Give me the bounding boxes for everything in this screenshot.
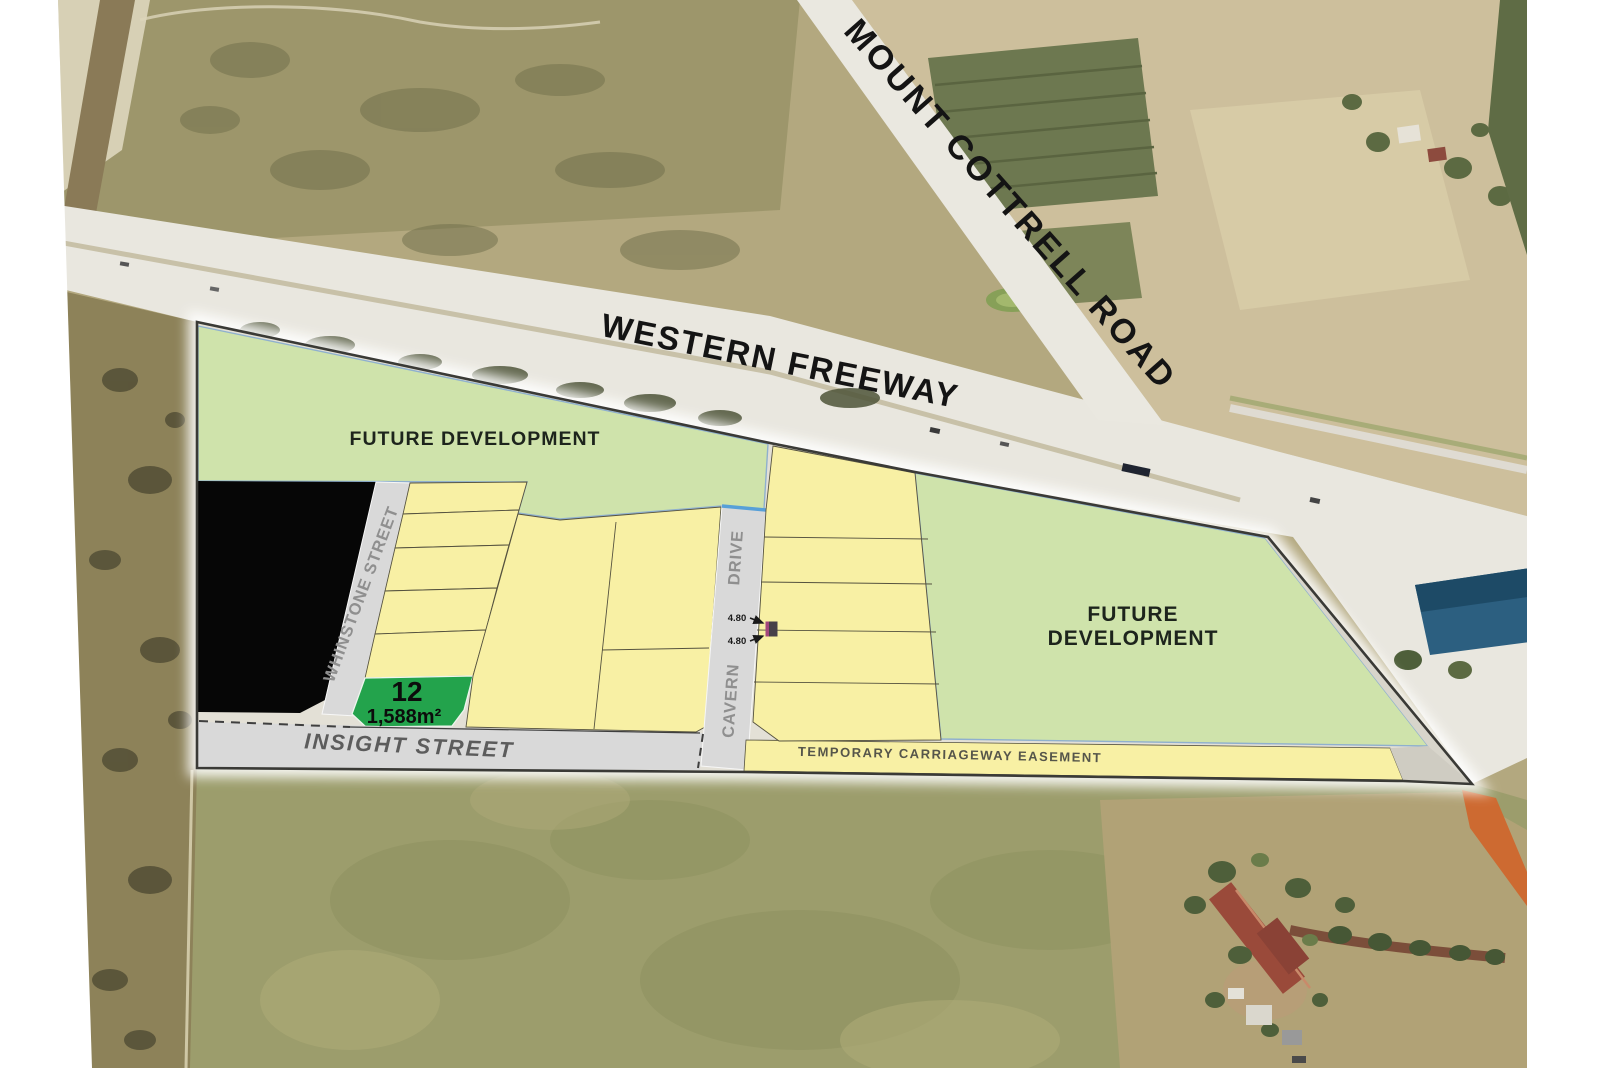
aerial-map: 4.80 4.80 12 1,588m² FUTURE DEVELOPMENT … <box>0 0 1600 1068</box>
lot-parcel <box>375 588 497 634</box>
lot-parcel <box>385 545 509 591</box>
lot-12-number-label: 12 <box>391 676 422 707</box>
lot-12-area-label: 1,588m² <box>367 706 442 728</box>
dimension-label-top: 4.80 <box>728 613 747 624</box>
dimension-label-bottom: 4.80 <box>728 636 747 647</box>
lot-parcel <box>365 630 486 678</box>
lot-column-east <box>753 446 941 741</box>
future-development-left-label: FUTURE DEVELOPMENT <box>350 428 601 450</box>
lot-parcel <box>395 510 519 548</box>
future-development-right-label-line1: FUTURE <box>1087 603 1178 626</box>
lot-parcel <box>403 482 527 514</box>
site-plan-brochure: 4.80 4.80 12 1,588m² FUTURE DEVELOPMENT … <box>0 0 1600 1068</box>
future-development-right-label-line2: DEVELOPMENT <box>1048 627 1219 650</box>
page-margin-right <box>1527 0 1600 1068</box>
field-light-wedge <box>1190 90 1470 310</box>
